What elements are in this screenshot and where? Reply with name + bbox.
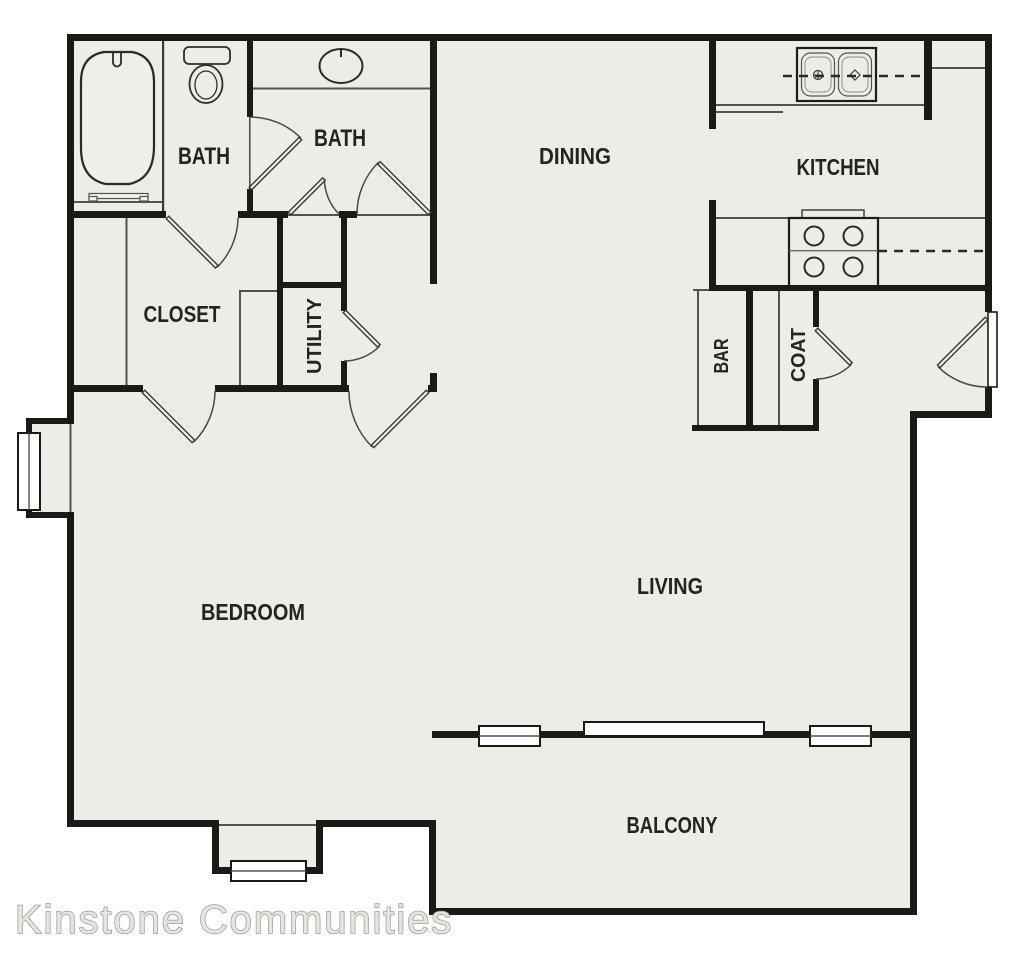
svg-text:Kinstone Communities: Kinstone Communities [15, 898, 453, 942]
svg-text:BAR: BAR [711, 338, 733, 373]
svg-text:KITCHEN: KITCHEN [797, 154, 880, 180]
svg-text:BATH: BATH [314, 125, 366, 152]
svg-text:CLOSET: CLOSET [144, 301, 221, 327]
svg-text:UTILITY: UTILITY [304, 297, 326, 374]
svg-text:DINING: DINING [539, 143, 611, 169]
svg-text:BALCONY: BALCONY [627, 812, 718, 838]
svg-text:BEDROOM: BEDROOM [201, 599, 305, 625]
svg-text:COAT: COAT [788, 328, 810, 382]
svg-text:BATH: BATH [178, 143, 230, 170]
svg-text:LIVING: LIVING [637, 573, 703, 599]
